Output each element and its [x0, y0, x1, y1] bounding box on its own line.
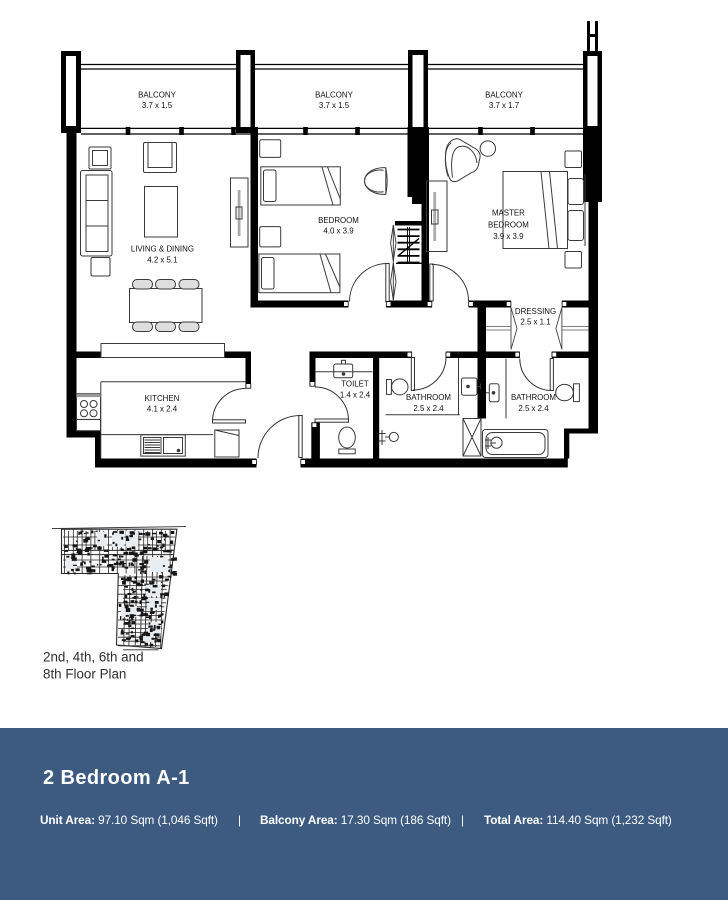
svg-text:BALCONY: BALCONY [315, 91, 353, 100]
svg-text:8th Floor Plan: 8th Floor Plan [43, 667, 126, 682]
svg-text:3.7 x 1.5: 3.7 x 1.5 [142, 101, 173, 110]
svg-text:BATHROOM: BATHROOM [406, 393, 451, 402]
svg-text:BEDROOM: BEDROOM [318, 216, 359, 225]
svg-text:BATHROOM: BATHROOM [511, 393, 556, 402]
svg-text:LIVING & DINING: LIVING & DINING [131, 245, 194, 254]
svg-text:TOILET: TOILET [341, 380, 369, 389]
svg-text:2.5 x 1.1: 2.5 x 1.1 [520, 318, 550, 327]
svg-text:2nd, 4th, 6th and: 2nd, 4th, 6th and [43, 650, 144, 665]
svg-text:4.2 x 5.1: 4.2 x 5.1 [147, 255, 177, 264]
svg-text:BALCONY: BALCONY [138, 91, 176, 100]
svg-text:4.1 x 2.4: 4.1 x 2.4 [147, 405, 178, 414]
svg-text:BEDROOM: BEDROOM [488, 220, 529, 229]
svg-text:1.4 x 2.4: 1.4 x 2.4 [340, 391, 371, 400]
svg-text:3.7 x 1.7: 3.7 x 1.7 [489, 101, 519, 110]
svg-text:4.0 x 3.9: 4.0 x 3.9 [323, 227, 354, 236]
svg-text:KITCHEN: KITCHEN [145, 394, 180, 403]
svg-text:3.9 x 3.9: 3.9 x 3.9 [493, 232, 524, 241]
svg-text:2.5 x 2.4: 2.5 x 2.4 [413, 404, 444, 413]
svg-text:3.7 x 1.5: 3.7 x 1.5 [319, 101, 350, 110]
svg-text:MASTER: MASTER [492, 209, 525, 218]
svg-text:2.5 x 2.4: 2.5 x 2.4 [518, 404, 549, 413]
svg-text:DRESSING: DRESSING [515, 307, 556, 316]
svg-text:BALCONY: BALCONY [485, 91, 523, 100]
